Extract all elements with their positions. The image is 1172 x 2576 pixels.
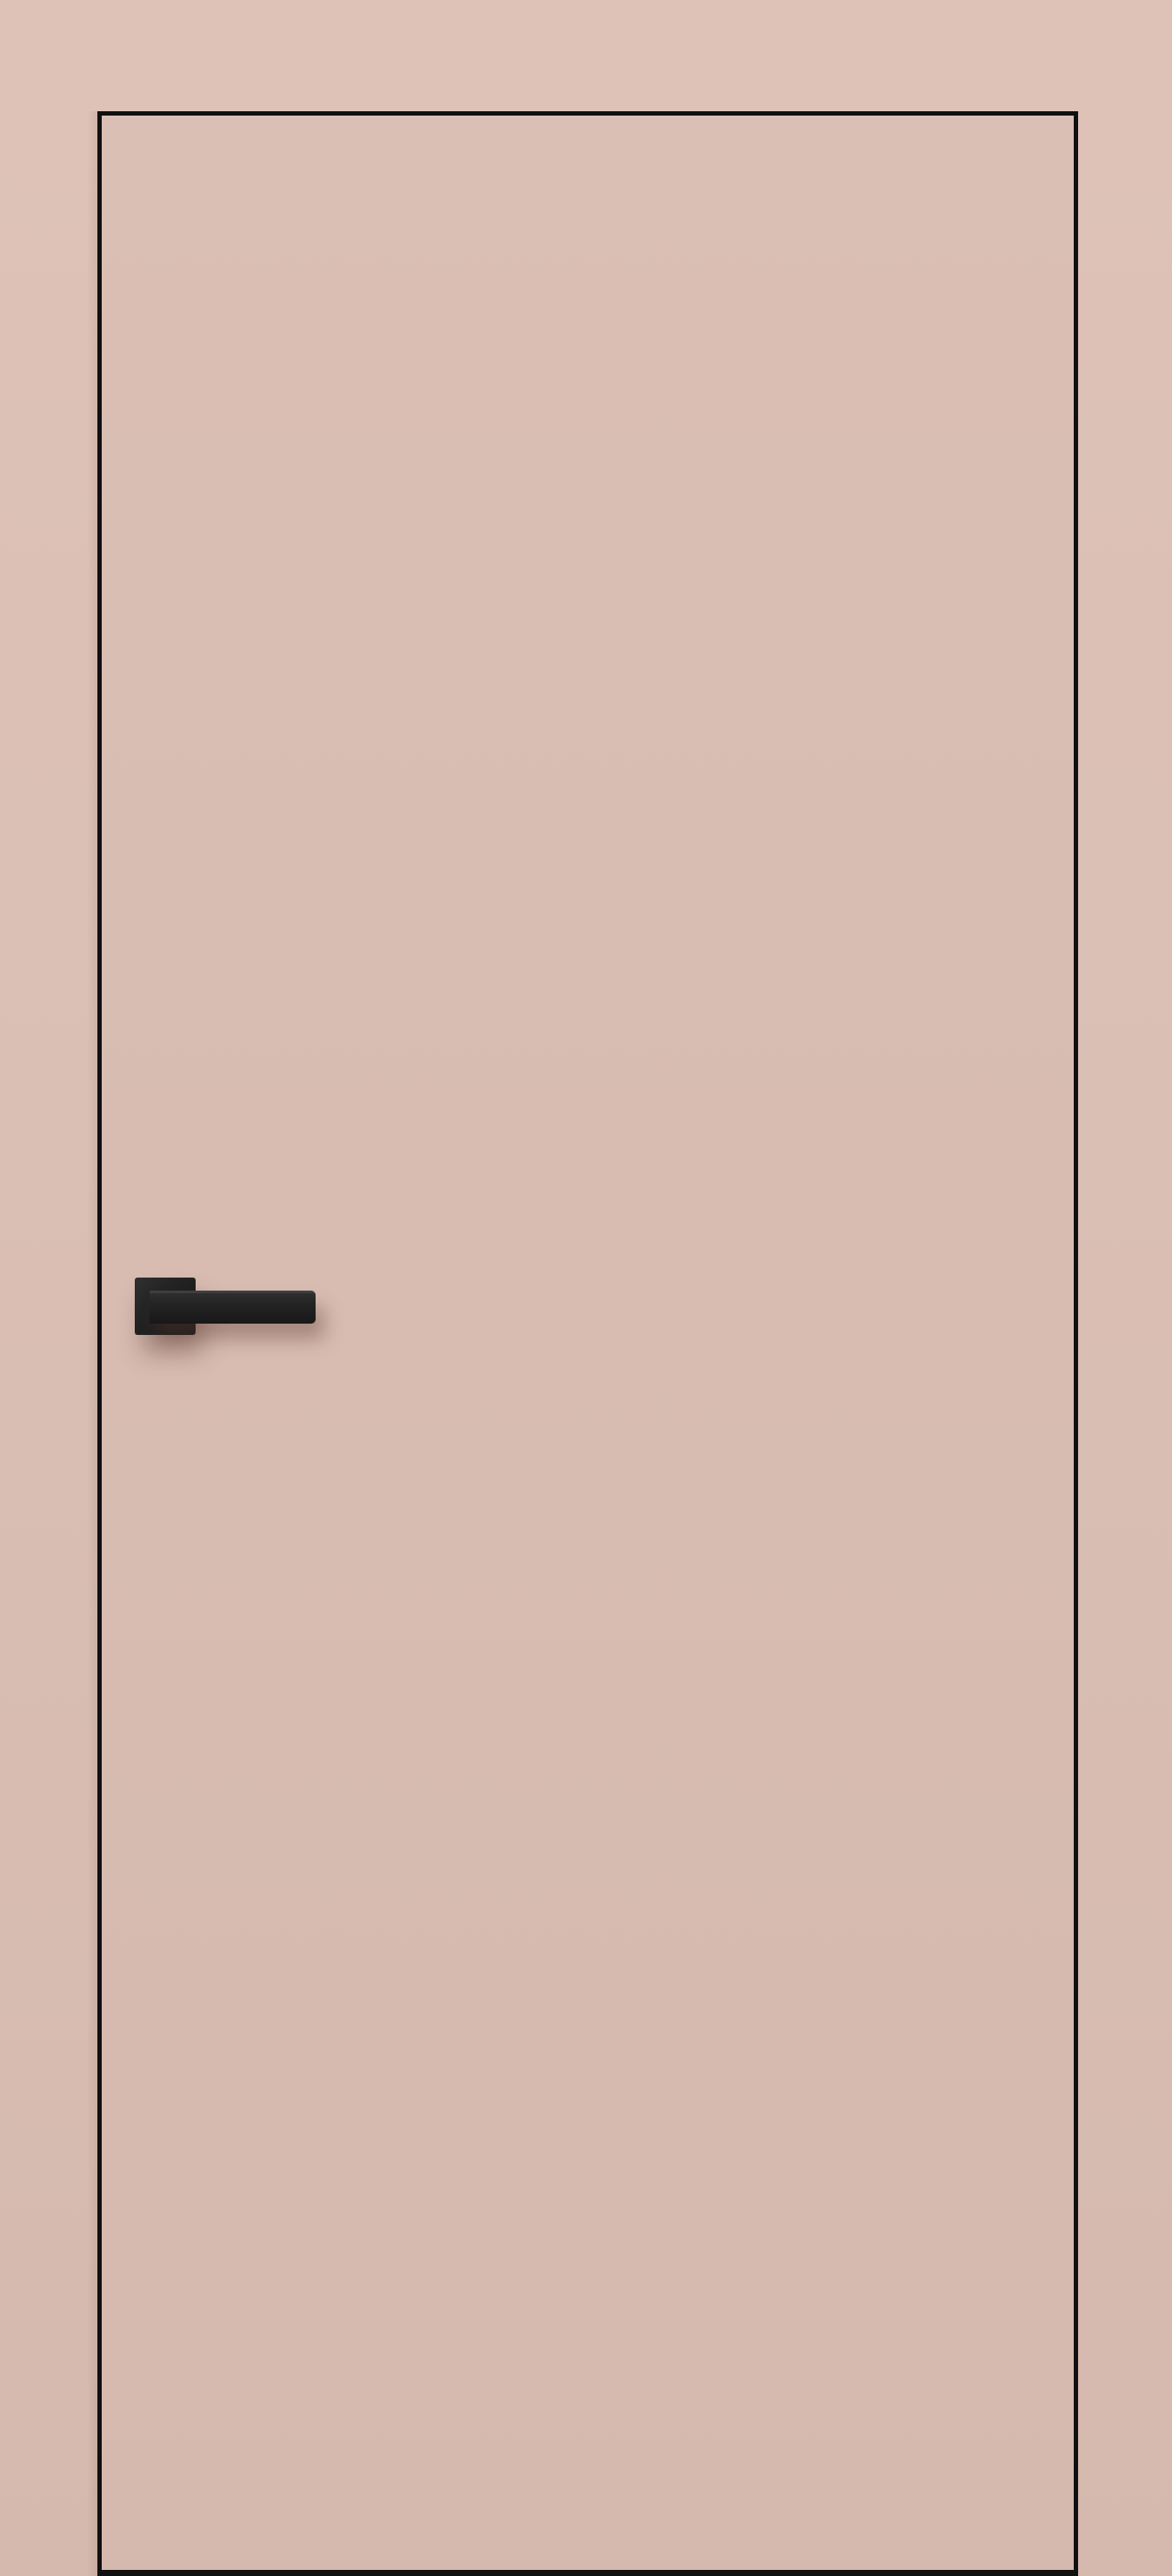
door-edge-shadow <box>87 111 97 2576</box>
wall-background <box>0 0 1172 2576</box>
door-handle-lever <box>150 1291 316 1324</box>
door-leaf <box>97 111 1078 2576</box>
